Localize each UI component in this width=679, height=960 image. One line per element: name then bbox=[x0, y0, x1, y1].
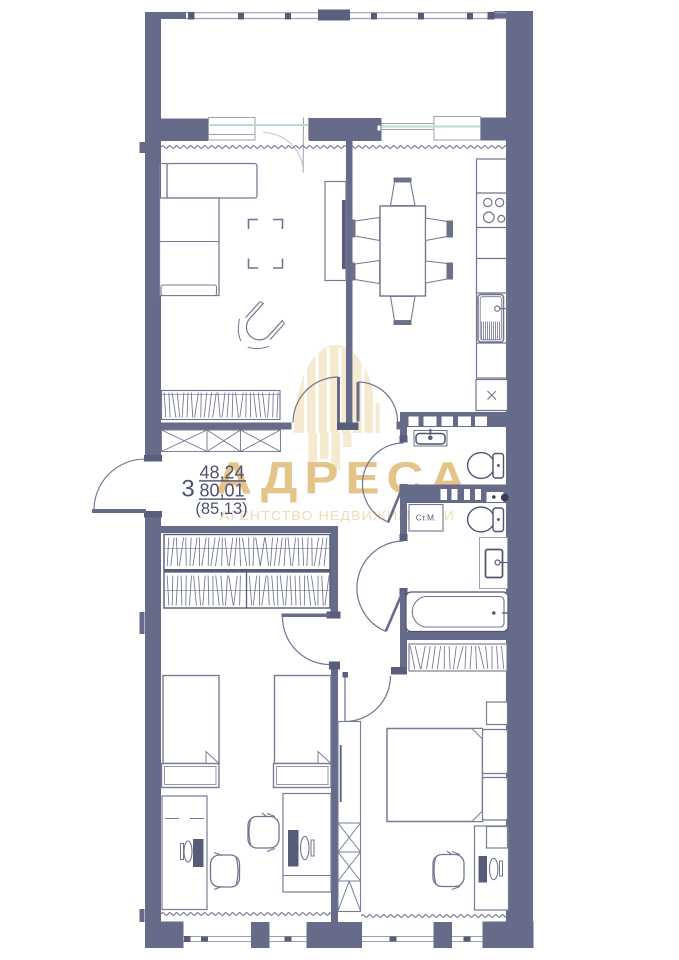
svg-text:80,01: 80,01 bbox=[199, 481, 244, 501]
svg-text:3: 3 bbox=[181, 476, 194, 503]
svg-text:48,24: 48,24 bbox=[199, 463, 244, 483]
svg-text:Ст.М.: Ст.М. bbox=[416, 513, 437, 523]
svg-text:(85,13): (85,13) bbox=[195, 500, 247, 518]
